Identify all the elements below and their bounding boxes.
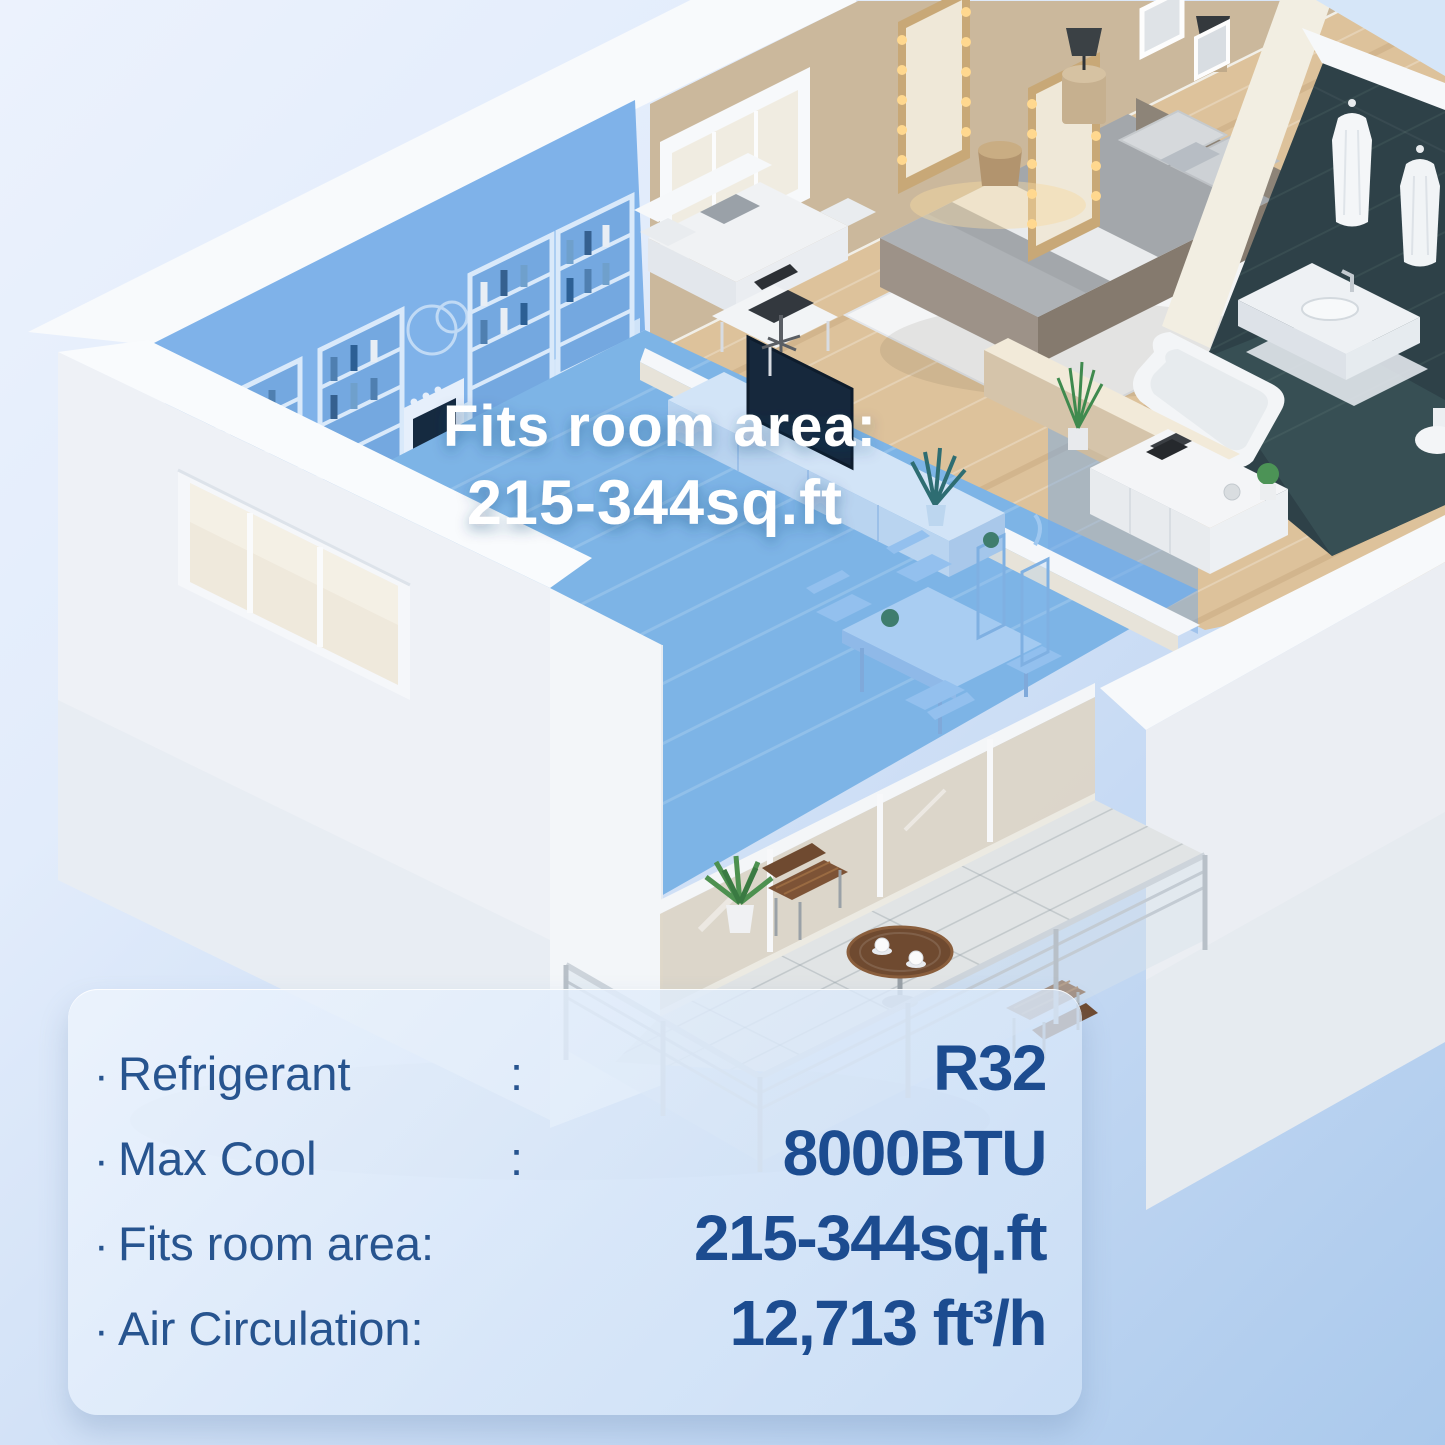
spec-value: 8000BTU xyxy=(544,1116,1046,1190)
bullet-dot: · xyxy=(94,1224,118,1268)
coverage-caption-line1: Fits room area: xyxy=(443,394,877,459)
coverage-caption-line2: 215-344sq.ft xyxy=(467,468,843,538)
spec-row-max-cool: · Max Cool : 8000BTU xyxy=(94,1116,1046,1183)
spec-row-air-circulation: · Air Circulation: 12,713 ft³/h xyxy=(94,1286,1046,1353)
spec-value: 12,713 ft³/h xyxy=(544,1286,1046,1360)
spec-row-fits-room-area: · Fits room area: 215-344sq.ft xyxy=(94,1201,1046,1268)
spec-colon: : xyxy=(510,1046,544,1101)
spec-label: Max Cool xyxy=(118,1131,510,1186)
spec-colon: : xyxy=(510,1131,544,1186)
spec-panel: · Refrigerant : R32 · Max Cool : 8000BTU… xyxy=(68,989,1082,1415)
spec-value: R32 xyxy=(544,1031,1046,1105)
product-infographic: Fits room area: 215-344sq.ft · Refrigera… xyxy=(0,0,1445,1445)
spec-value: 215-344sq.ft xyxy=(544,1201,1046,1275)
bullet-dot: · xyxy=(94,1139,118,1183)
spec-label: Air Circulation: xyxy=(118,1301,510,1356)
spec-row-refrigerant: · Refrigerant : R32 xyxy=(94,1031,1046,1098)
bullet-dot: · xyxy=(94,1054,118,1098)
spec-label: Refrigerant xyxy=(118,1046,510,1101)
bullet-dot: · xyxy=(94,1309,118,1353)
spec-label: Fits room area: xyxy=(118,1216,510,1271)
